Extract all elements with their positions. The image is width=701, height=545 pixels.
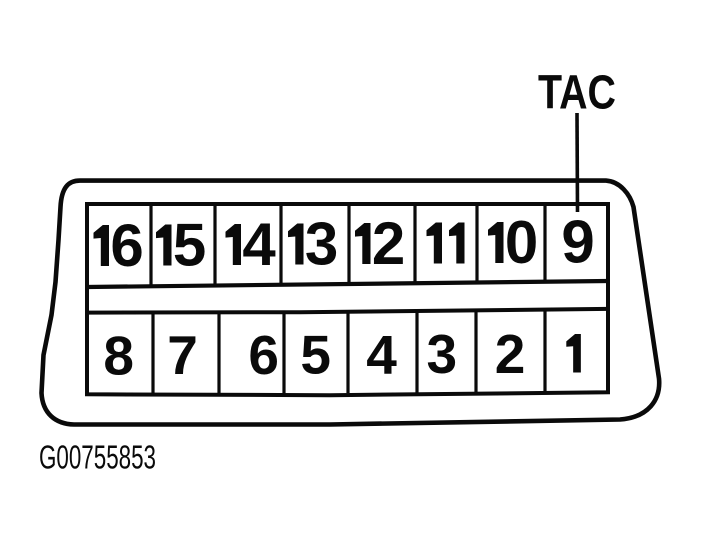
- svg-text:4: 4: [366, 323, 397, 385]
- svg-text:6: 6: [248, 324, 279, 386]
- svg-text:5: 5: [300, 324, 331, 386]
- svg-text:9: 9: [561, 209, 594, 276]
- svg-text:4: 4: [242, 211, 276, 278]
- svg-text:8: 8: [103, 325, 134, 387]
- svg-text:7: 7: [167, 324, 198, 386]
- svg-text:0: 0: [505, 209, 538, 276]
- svg-text:TAC: TAC: [538, 67, 616, 120]
- svg-text:2: 2: [372, 210, 405, 277]
- svg-text:G00755853: G00755853: [39, 439, 156, 476]
- svg-text:2: 2: [495, 323, 526, 385]
- svg-text:3: 3: [305, 211, 338, 278]
- svg-text:5: 5: [173, 212, 206, 279]
- svg-text:3: 3: [427, 323, 458, 385]
- svg-text:6: 6: [110, 212, 143, 279]
